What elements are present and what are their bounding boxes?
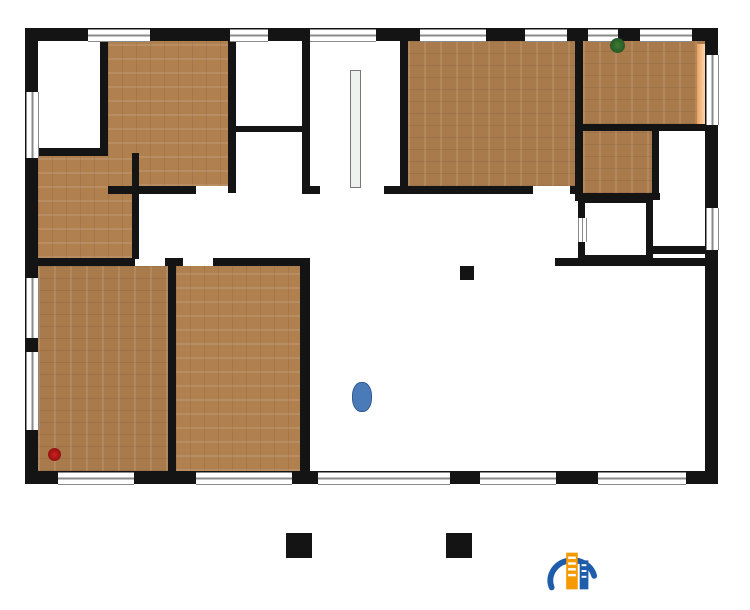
elevator-wall	[578, 255, 653, 262]
room-floor-public-bath	[236, 41, 302, 126]
wall-segment	[165, 258, 183, 266]
plant-icon	[610, 38, 625, 53]
window	[706, 208, 719, 250]
wall-segment	[652, 131, 659, 193]
wall-segment	[228, 41, 236, 193]
wall-segment	[38, 148, 108, 156]
room-floor-washroom	[236, 133, 302, 186]
window	[26, 278, 39, 338]
wall-segment	[25, 258, 135, 266]
wall-segment	[168, 266, 176, 471]
figure-icon	[352, 382, 372, 412]
window	[230, 29, 268, 42]
window	[310, 29, 376, 42]
window	[196, 472, 292, 485]
window	[26, 92, 39, 158]
brand-logo-icon	[542, 543, 600, 599]
floorplan-canvas: 内卫7.93m² 卧室16.23m² 公卫6.32m² 洗漱间2.48m² 下 …	[0, 0, 750, 610]
room-floor-study	[583, 41, 705, 124]
balcony-post-left	[286, 533, 312, 558]
wall-segment	[228, 126, 308, 132]
wall-segment	[300, 258, 310, 471]
window	[26, 352, 39, 430]
window	[525, 29, 567, 42]
balcony-post-right	[446, 533, 472, 558]
wall-segment	[384, 186, 408, 194]
wall-segment	[575, 124, 712, 131]
wall-segment	[100, 41, 108, 153]
window	[480, 472, 556, 485]
elevator-wall	[646, 196, 653, 262]
wall-segment	[575, 41, 583, 201]
stair-rail	[350, 70, 361, 188]
room-floor-bath-topleft	[38, 41, 100, 148]
window	[706, 55, 719, 125]
room-floor-bedroom-22-46	[408, 41, 575, 186]
room-floor-bath-right	[659, 131, 705, 246]
room-floor-bedroom-22-29	[176, 266, 300, 471]
wall-segment	[408, 186, 533, 194]
wall-segment	[108, 186, 196, 194]
wall-segment	[460, 266, 474, 280]
wall-segment	[302, 41, 310, 193]
window	[598, 472, 686, 485]
pot-icon	[48, 448, 61, 461]
wall-segment	[302, 186, 320, 194]
room-floor-bedroom-27	[38, 266, 168, 471]
window	[420, 29, 486, 42]
elevator-door	[578, 218, 587, 242]
wall-segment	[213, 258, 310, 266]
window-seat	[697, 44, 705, 124]
window	[640, 29, 692, 42]
window	[88, 29, 150, 42]
balcony-door	[318, 472, 450, 485]
room-floor-closet-9	[38, 156, 132, 258]
wall-segment	[652, 246, 712, 254]
wall-segment	[132, 153, 139, 259]
room-floor-closet-3	[583, 131, 652, 193]
window	[58, 472, 134, 485]
wall-segment	[400, 41, 408, 193]
elevator-wall	[578, 196, 653, 203]
